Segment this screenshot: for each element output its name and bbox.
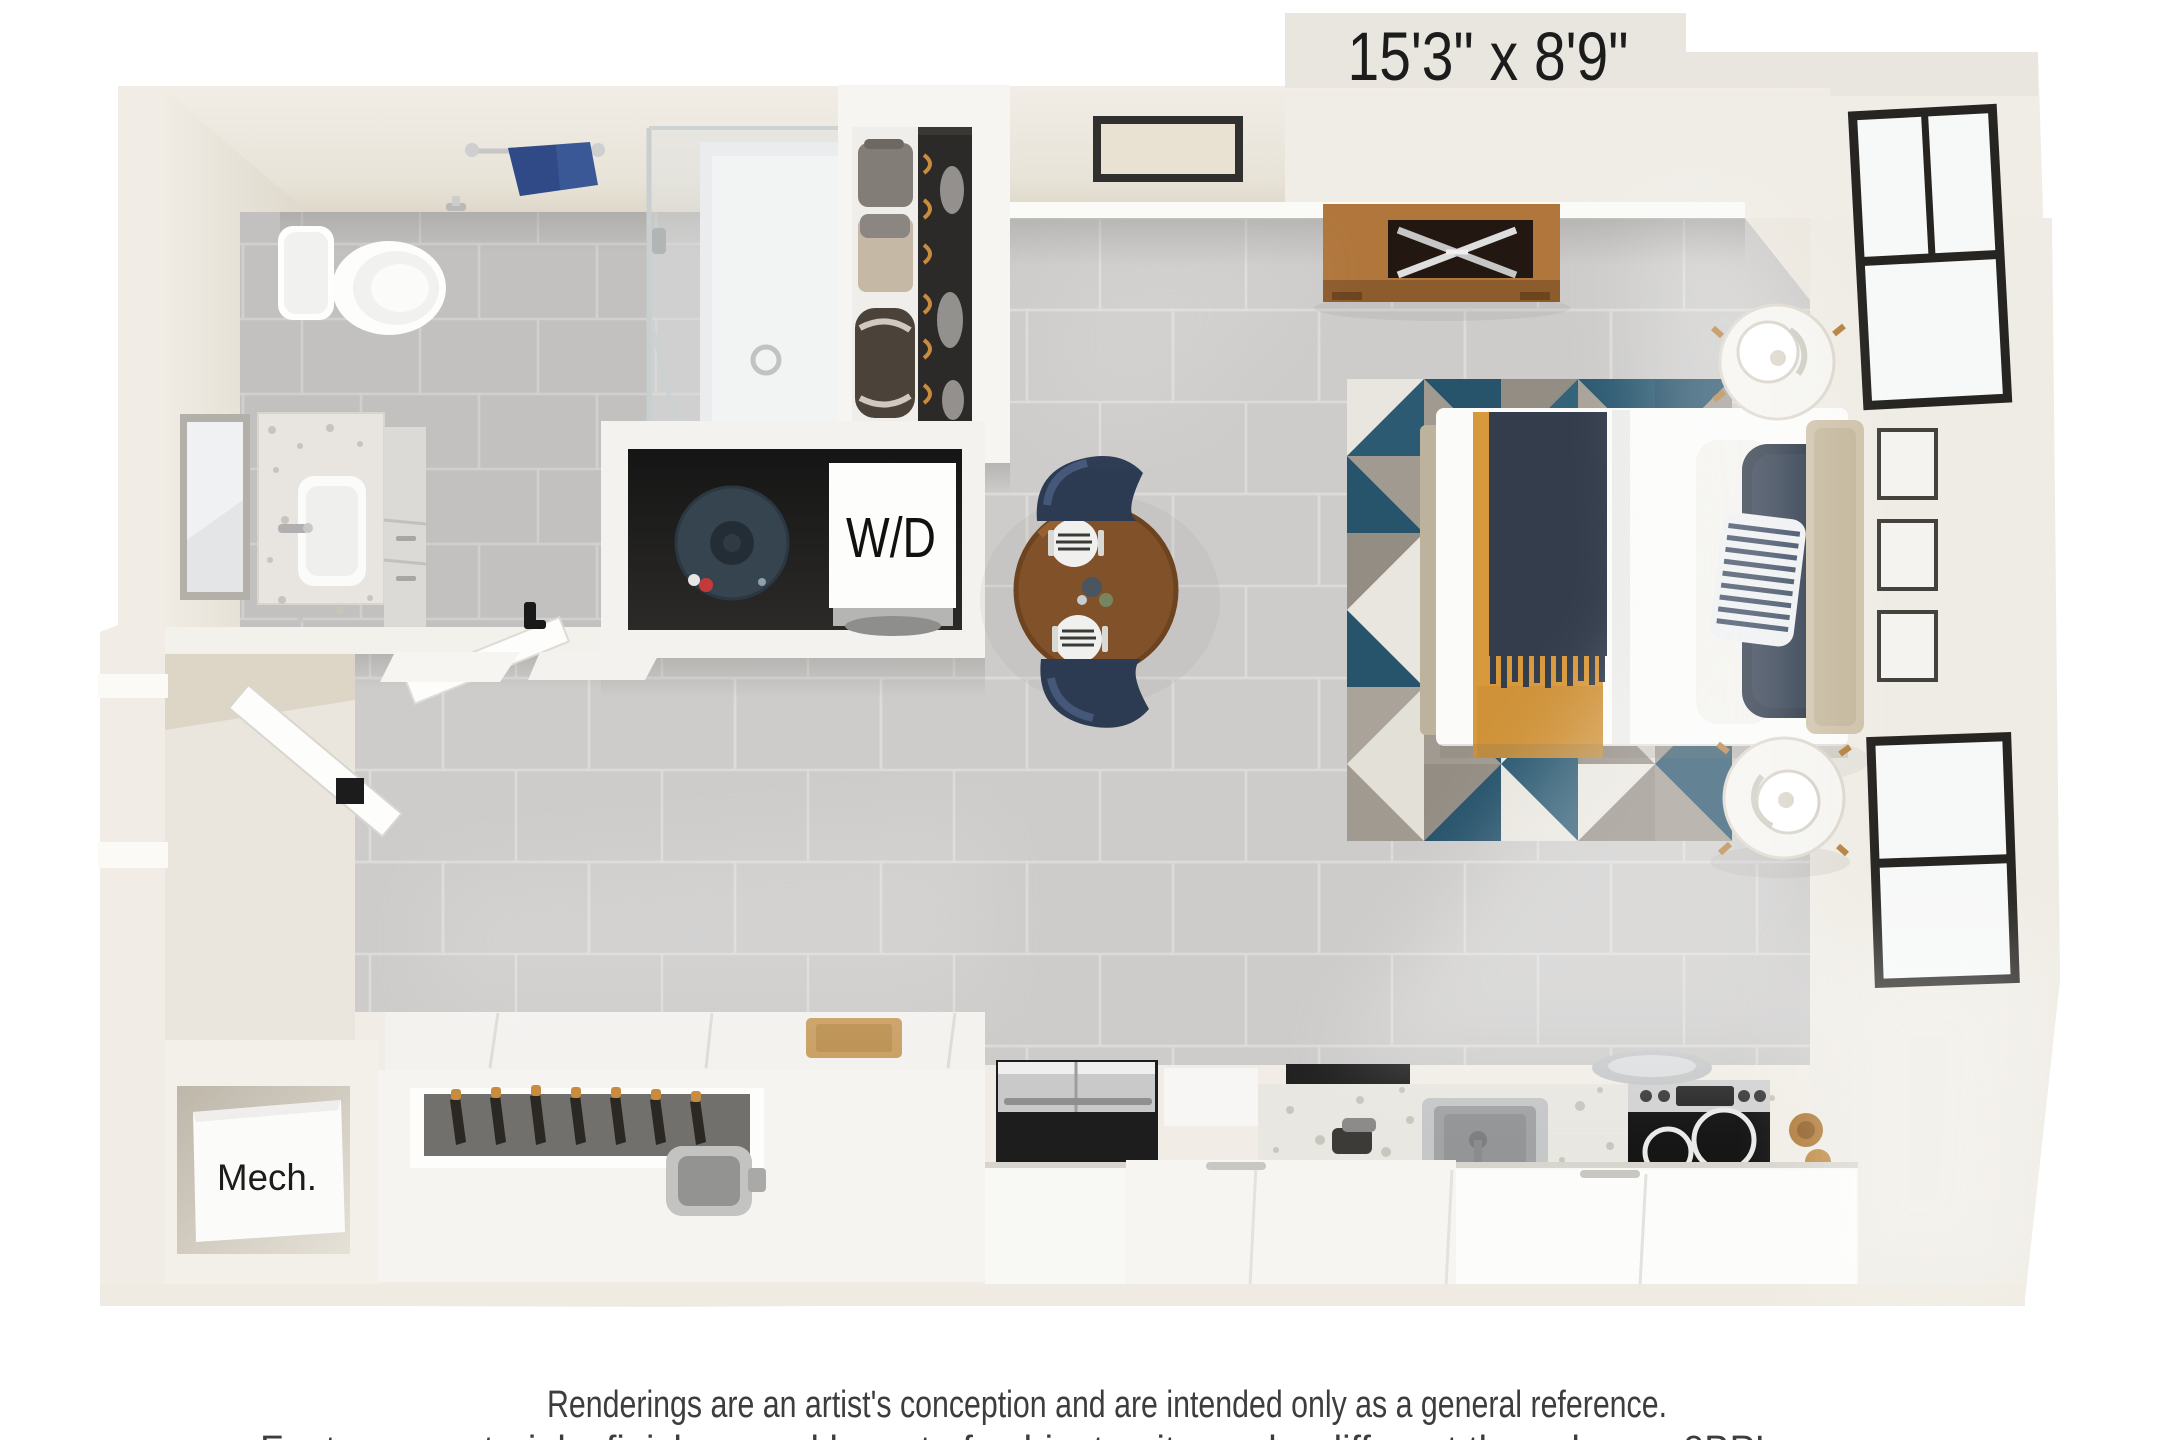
- svg-text:Features, materials, finishes,: Features, materials, finishes, and layou…: [260, 1429, 1776, 1440]
- svg-text:W/D: W/D: [846, 506, 936, 570]
- svg-text:15'3" x 8'9": 15'3" x 8'9": [1348, 18, 1629, 95]
- svg-text:Mech.: Mech.: [217, 1157, 317, 1198]
- svg-text:Renderings are an artist's con: Renderings are an artist's conception an…: [547, 1384, 1667, 1426]
